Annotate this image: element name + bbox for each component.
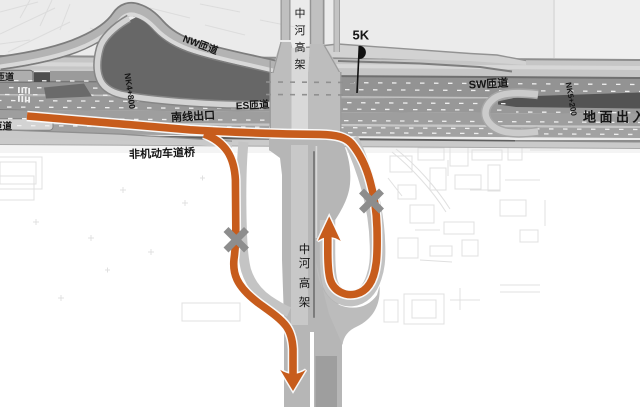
svg-text:地面出入口: 地面出入口 [583, 110, 640, 125]
svg-text:高: 高 [295, 40, 306, 54]
svg-text:中: 中 [295, 7, 306, 20]
svg-text:河: 河 [299, 257, 311, 270]
svg-text:架: 架 [295, 58, 306, 71]
svg-text:中: 中 [299, 243, 311, 256]
svg-text:匝道: 匝道 [0, 71, 14, 82]
svg-text:高: 高 [299, 276, 311, 290]
svg-text:匝道: 匝道 [0, 121, 13, 133]
svg-text:架: 架 [299, 296, 311, 309]
svg-text:5K: 5K [353, 28, 370, 43]
svg-text:河: 河 [295, 24, 306, 37]
